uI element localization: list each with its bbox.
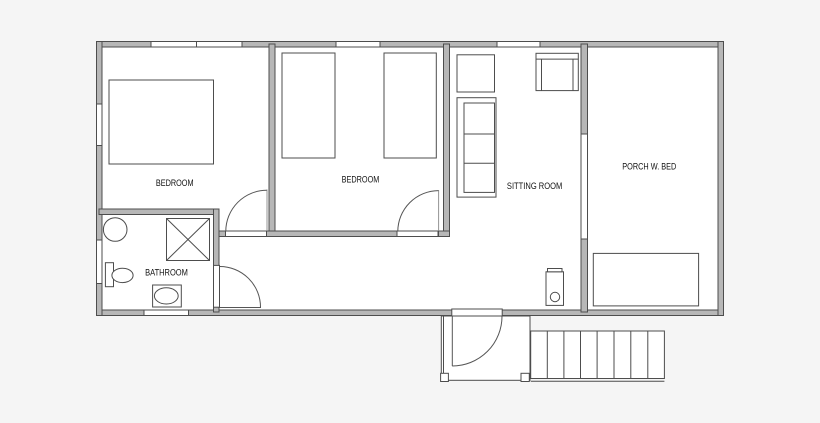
svg-text:BEDROOM: BEDROOM xyxy=(156,177,194,188)
svg-text:BEDROOM: BEDROOM xyxy=(342,174,380,185)
svg-text:BATHROOM: BATHROOM xyxy=(145,267,188,278)
svg-text:SITTING ROOM: SITTING ROOM xyxy=(507,180,562,191)
svg-text:PORCH W. BED: PORCH W. BED xyxy=(622,161,676,172)
